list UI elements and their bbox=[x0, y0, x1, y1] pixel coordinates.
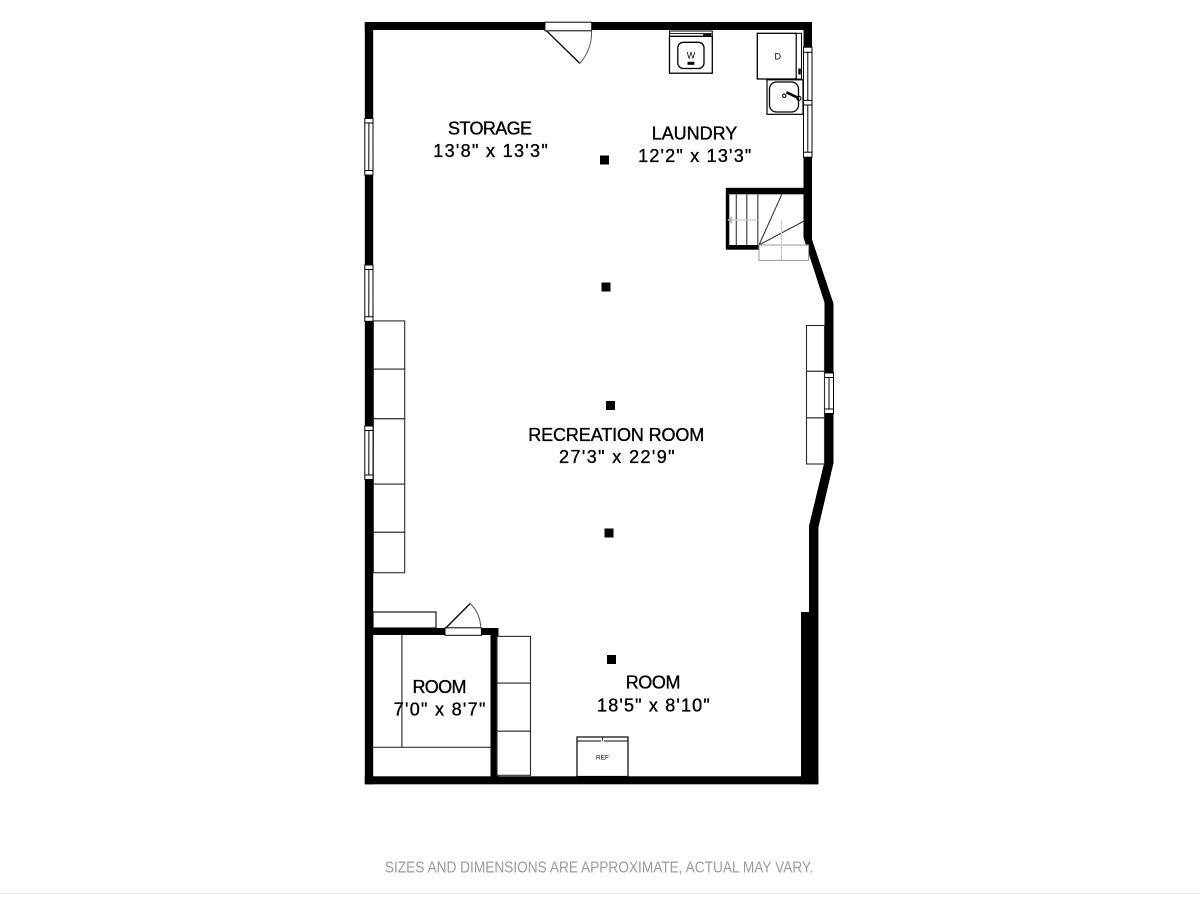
svg-text:STORAGE: STORAGE bbox=[448, 119, 532, 139]
svg-text:12'2" x 13'3": 12'2" x 13'3" bbox=[638, 146, 751, 166]
svg-text:SIZES AND DIMENSIONS ARE APPRO: SIZES AND DIMENSIONS ARE APPROXIMATE, AC… bbox=[385, 860, 813, 877]
svg-text:W: W bbox=[687, 50, 696, 60]
svg-text:LAUNDRY: LAUNDRY bbox=[652, 124, 738, 144]
svg-text:7'0" x 8'7": 7'0" x 8'7" bbox=[394, 699, 486, 719]
svg-text:REF: REF bbox=[596, 755, 609, 762]
svg-text:18'5" x 8'10": 18'5" x 8'10" bbox=[597, 696, 710, 716]
svg-text:ROOM: ROOM bbox=[412, 677, 466, 697]
svg-text:ROOM: ROOM bbox=[626, 672, 681, 692]
svg-text:13'8" x 13'3": 13'8" x 13'3" bbox=[433, 141, 548, 161]
svg-text:RECREATION ROOM: RECREATION ROOM bbox=[528, 425, 704, 445]
svg-text:D: D bbox=[775, 52, 782, 62]
svg-text:27'3" x 22'9": 27'3" x 22'9" bbox=[559, 447, 675, 467]
